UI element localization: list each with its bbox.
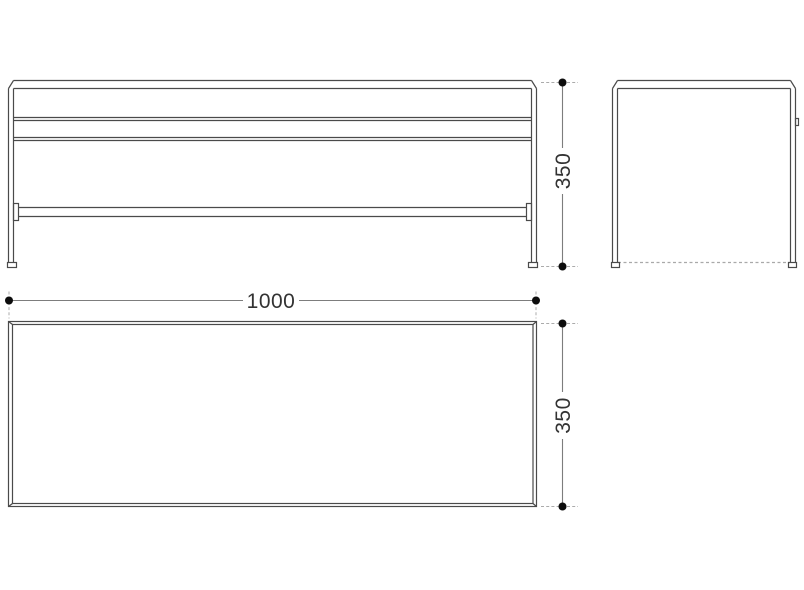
front-rail-lower [14, 138, 532, 141]
front-left-leg [9, 89, 14, 263]
plan-view [9, 322, 537, 507]
front-foot-right [529, 263, 538, 268]
dimension-plan-depth: 350 [541, 320, 578, 511]
dimension-label-plan-length: 1000 [247, 290, 296, 313]
dimension-label-plan-depth: 350 [552, 397, 575, 434]
side-left-leg [613, 89, 618, 263]
dimension-endpoint-dot [532, 297, 540, 305]
plan-seat-outline [9, 322, 537, 507]
side-foot-left [612, 263, 620, 268]
side-right-leg [791, 89, 796, 263]
front-stretcher-bracket-right [527, 204, 532, 221]
front-view [8, 81, 538, 268]
side-seat-top-edge [613, 81, 796, 89]
front-rail-upper [14, 118, 532, 121]
plan-seat-inner-edge [13, 325, 534, 504]
dimension-endpoint-dot [5, 297, 13, 305]
technical-drawing: 1000 350 350 [0, 0, 804, 590]
drawing-canvas: 1000 350 350 [0, 0, 804, 590]
plan-corner-chamfers [9, 322, 537, 507]
front-right-leg [532, 89, 537, 263]
dimension-endpoint-dot [559, 320, 567, 328]
dimension-label-front-height: 350 [552, 153, 575, 190]
front-stretcher [19, 208, 527, 217]
side-view [612, 81, 799, 268]
dimension-endpoint-dot [559, 263, 567, 271]
dimension-front-height: 350 [541, 79, 578, 271]
dimension-plan-length: 1000 [5, 290, 540, 319]
side-rail-end-tab [796, 119, 799, 126]
front-stretcher-bracket-left [14, 204, 19, 221]
dimension-endpoint-dot [559, 503, 567, 511]
dimension-endpoint-dot [559, 79, 567, 87]
front-foot-left [8, 263, 17, 268]
front-seat-top-edge [9, 81, 537, 89]
side-foot-right [789, 263, 797, 268]
